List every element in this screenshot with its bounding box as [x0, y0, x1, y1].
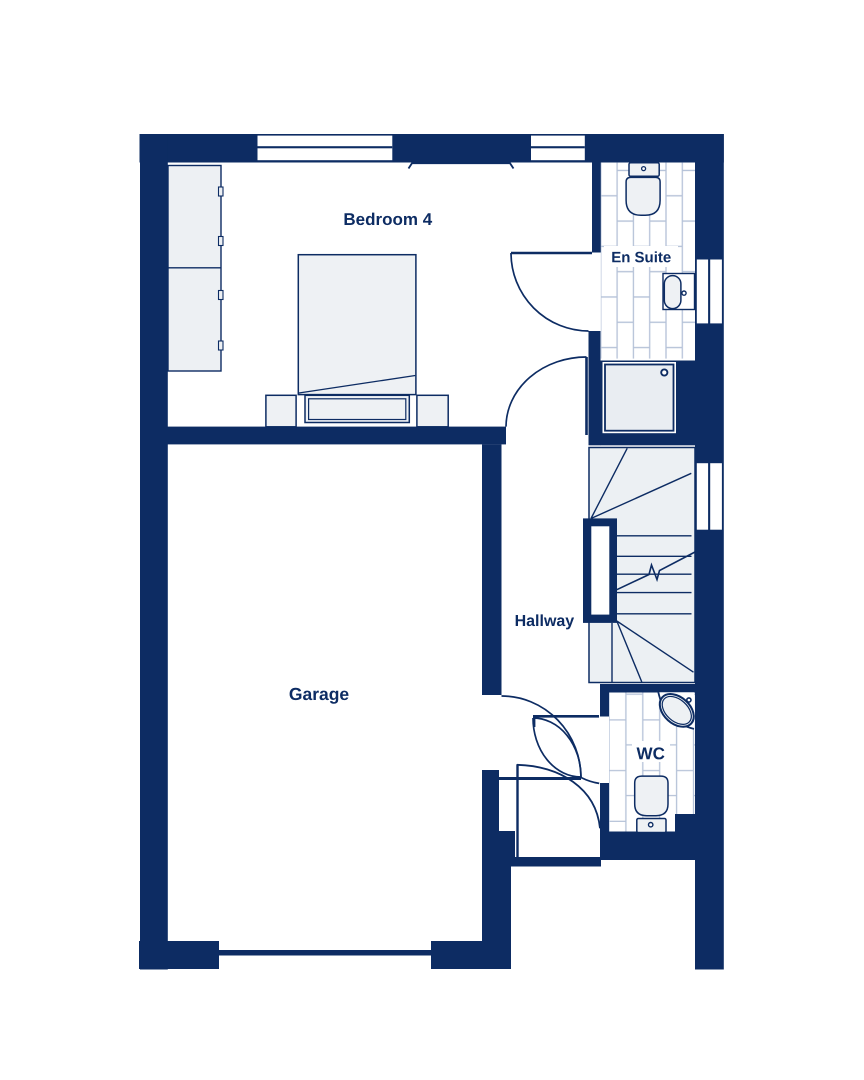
- svg-text:En Suite: En Suite: [611, 249, 671, 266]
- svg-text:Bedroom 4: Bedroom 4: [343, 210, 432, 229]
- svg-text:WC: WC: [637, 744, 665, 763]
- svg-text:Hallway: Hallway: [515, 613, 575, 630]
- svg-text:Garage: Garage: [289, 684, 350, 704]
